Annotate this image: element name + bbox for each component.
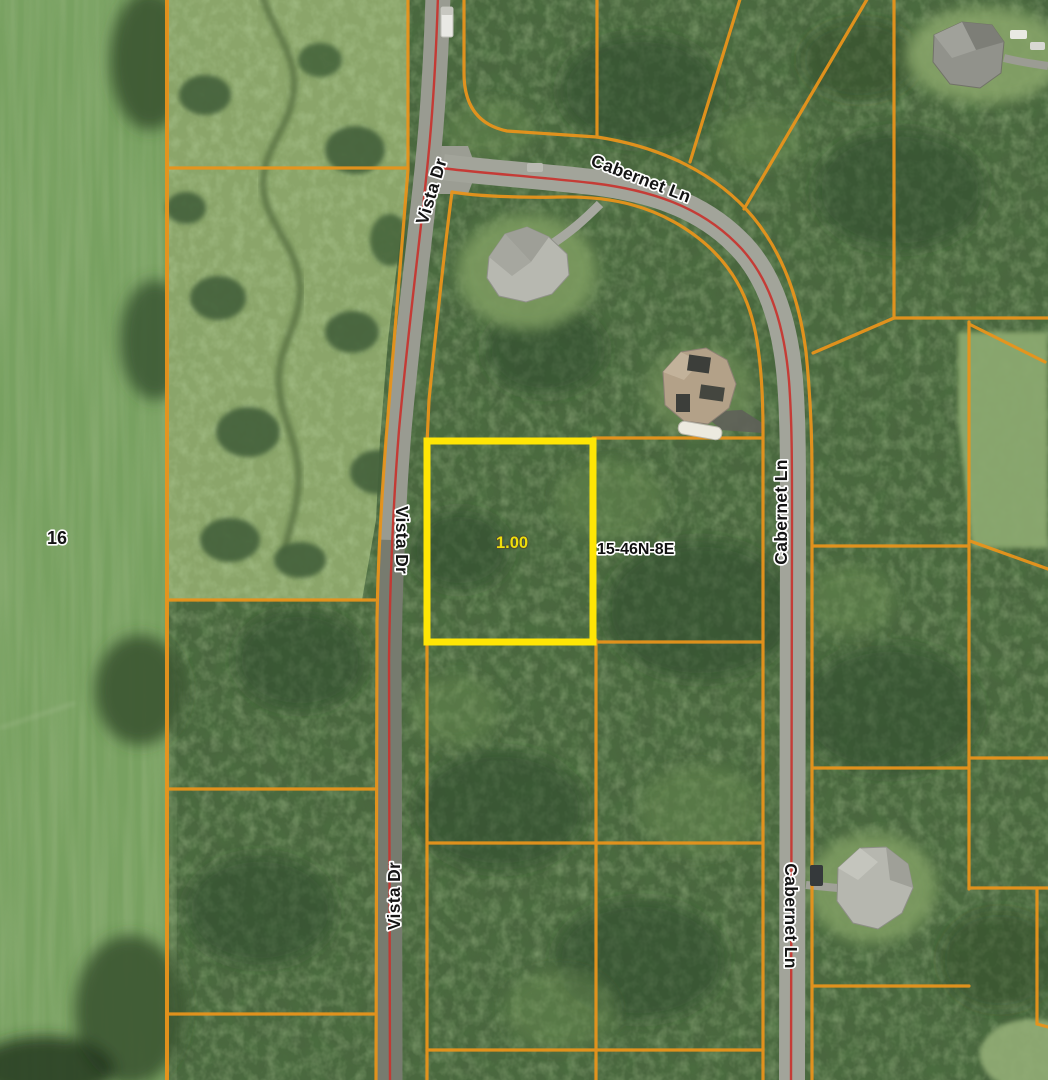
road-label-cabernet-ln-right-lower: Cabernet Ln: [781, 863, 801, 968]
map-canvas[interactable]: Vista Dr Vista Dr Vista Dr Cabernet Ln C…: [0, 0, 1048, 1080]
aerial-parcel-map: Vista Dr Vista Dr Vista Dr Cabernet Ln C…: [0, 0, 1048, 1080]
section-number-label: 16: [47, 528, 67, 548]
vehicle-on-cabernet-ln: [527, 163, 543, 172]
road-label-vista-dr-middle: Vista Dr: [392, 506, 412, 574]
parcel-acreage-label: 1.00: [496, 534, 528, 552]
parked-car: [810, 865, 823, 886]
section-township-range-label: 15-46N-8E: [597, 541, 675, 558]
road-label-cabernet-ln-right-upper: Cabernet Ln: [771, 459, 791, 564]
road-label-vista-dr-bottom: Vista Dr: [384, 862, 404, 930]
vehicle-on-vista-dr: [441, 7, 453, 37]
corn-field: [0, 0, 190, 1080]
